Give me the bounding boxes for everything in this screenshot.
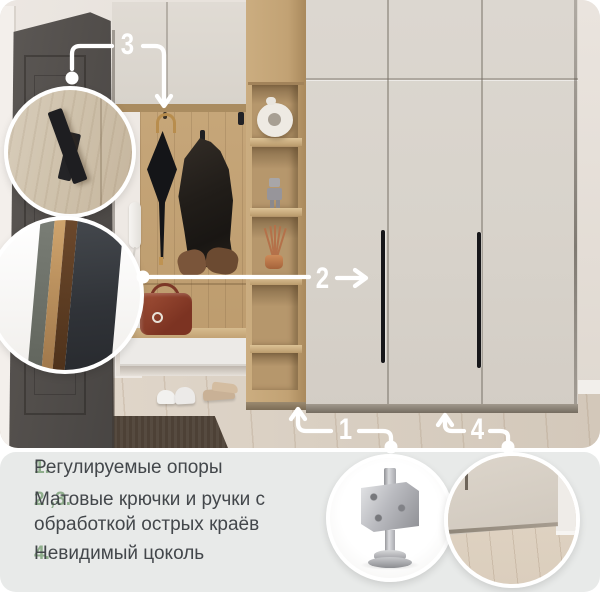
- shelf: [250, 138, 302, 146]
- robot-figurine: [269, 178, 280, 187]
- shelf: [250, 345, 302, 353]
- foot-base-plate: [368, 557, 412, 568]
- edge-closeup-inset: [0, 216, 144, 374]
- door-handle: [477, 232, 481, 368]
- leather-bag: [140, 293, 192, 335]
- wardrobe-gap-highlight: [306, 80, 578, 81]
- bag-emblem: [152, 312, 163, 323]
- callout-1: 1: [339, 413, 352, 447]
- cabinet-underside: [112, 104, 252, 112]
- door-gap: [465, 456, 468, 490]
- robot-figurine: [270, 200, 274, 208]
- foot-bracket: [361, 482, 419, 532]
- wardrobe-edge: [574, 0, 577, 412]
- feature-text: Матовые крючки и ручки с обработкой остр…: [34, 487, 358, 537]
- robot-figurine: [267, 188, 282, 200]
- sneaker: [175, 386, 196, 404]
- vase-hole: [268, 113, 281, 126]
- callout-3: 3: [121, 28, 134, 62]
- baseboard: [578, 380, 600, 394]
- product-infographic: 1.Регулируемые опоры 2 ,3.Матовые крючки…: [0, 0, 600, 592]
- robot-figurine: [276, 200, 280, 208]
- callout-4: 4: [471, 413, 484, 447]
- hidden-plinth-inset: [444, 452, 580, 588]
- hook-closeup-inset: [4, 86, 136, 218]
- feature-text: Невидимый цоколь: [34, 541, 204, 566]
- adjustable-foot-inset: [326, 454, 454, 582]
- foot-rod: [384, 468, 396, 486]
- umbrella-tip: [159, 257, 163, 265]
- door-gap: [481, 0, 483, 412]
- shelf: [250, 208, 302, 216]
- feature-text: Регулируемые опоры: [34, 455, 223, 480]
- panel-layers: [26, 216, 144, 374]
- wall-sliver: [556, 456, 576, 535]
- wood-seam: [100, 90, 102, 214]
- shelf-cell: [252, 285, 298, 345]
- vase-neck: [266, 97, 276, 105]
- shelf: [250, 277, 302, 285]
- callout-2: 2: [316, 262, 329, 296]
- wardrobe: [306, 0, 578, 412]
- door-handle: [381, 230, 385, 363]
- wall-hook: [238, 112, 244, 125]
- shelf-cell: [252, 353, 298, 390]
- bench-shadow: [120, 366, 248, 376]
- door-gap: [387, 0, 389, 412]
- hidden-plinth-recess: [306, 404, 578, 413]
- cabinet-gap: [166, 2, 168, 104]
- doormat: [96, 416, 228, 448]
- reed-diffuser: [265, 255, 283, 269]
- sneaker: [157, 390, 176, 404]
- shelf: [248, 82, 304, 85]
- umbrella-handle: [156, 113, 176, 133]
- column-base-shadow: [246, 402, 306, 410]
- side-wall: [578, 0, 600, 392]
- foot-screw: [385, 530, 395, 552]
